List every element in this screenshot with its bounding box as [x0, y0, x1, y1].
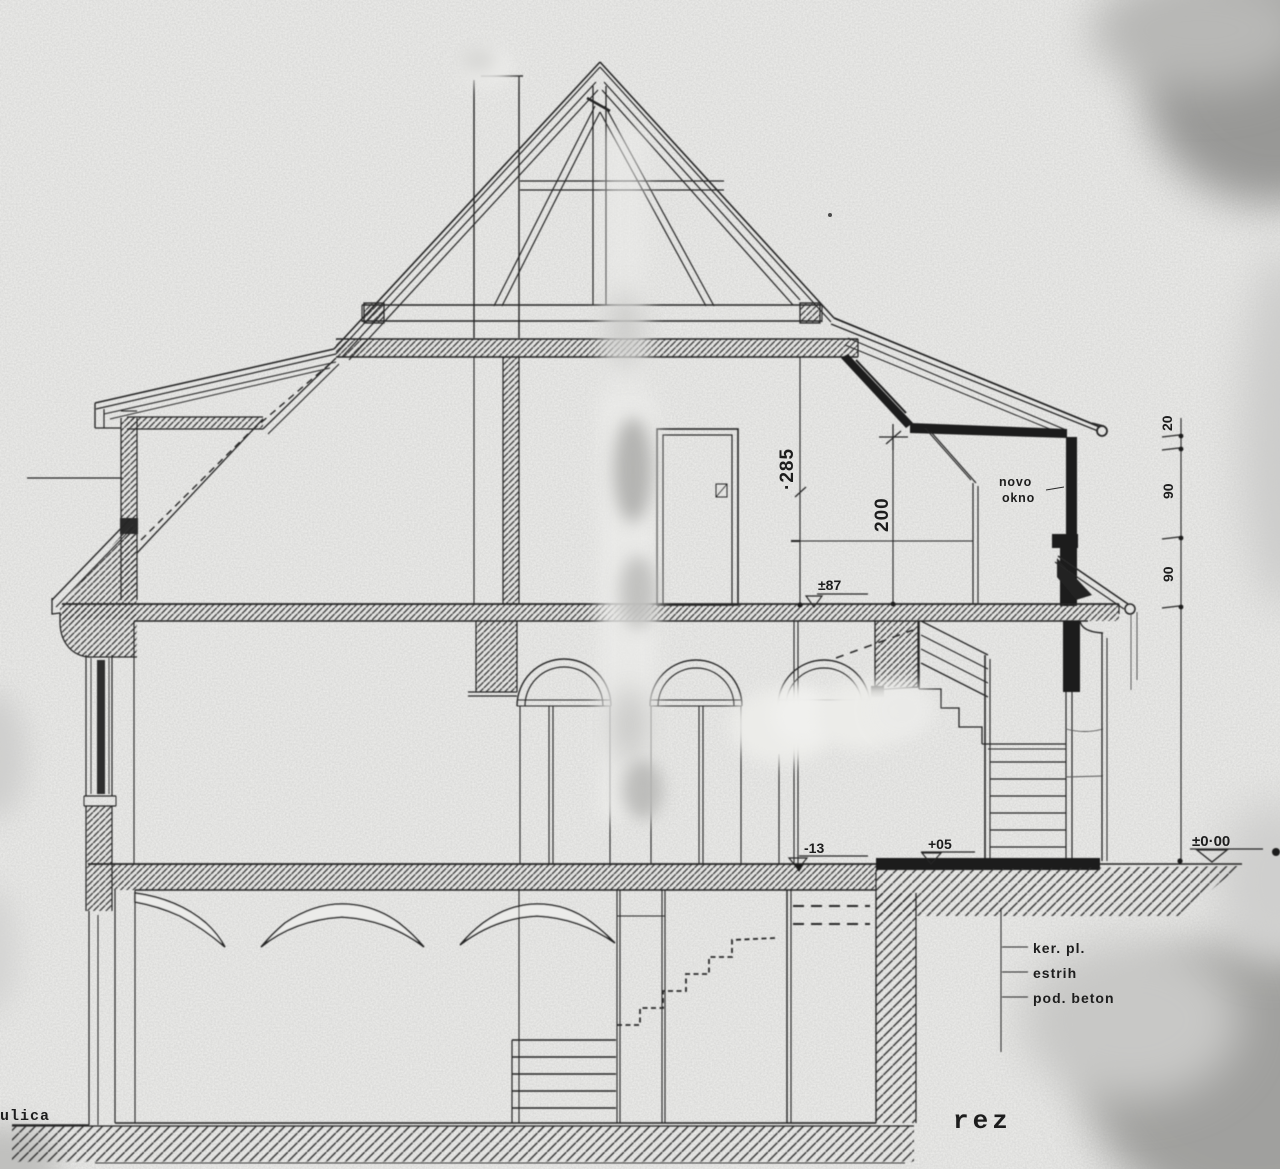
svg-text:±0·00: ±0·00 [1192, 833, 1230, 850]
svg-text:±87: ±87 [818, 577, 841, 593]
svg-text:90: 90 [1160, 483, 1176, 499]
svg-text:ulica: ulica [0, 1108, 50, 1125]
svg-text:90: 90 [1160, 566, 1176, 582]
svg-text:rez: rez [953, 1106, 1012, 1136]
svg-text:20: 20 [1159, 415, 1175, 431]
svg-text:-13: -13 [804, 840, 824, 856]
svg-text:·285: ·285 [777, 448, 798, 490]
svg-text:estrih: estrih [1033, 965, 1077, 981]
svg-text:ker. pl.: ker. pl. [1033, 940, 1085, 956]
svg-text:okno: okno [1002, 491, 1035, 505]
svg-text:pod. beton: pod. beton [1033, 990, 1115, 1006]
svg-text:+05: +05 [928, 836, 952, 852]
svg-text:200: 200 [872, 497, 893, 532]
svg-text:novo: novo [999, 475, 1032, 489]
